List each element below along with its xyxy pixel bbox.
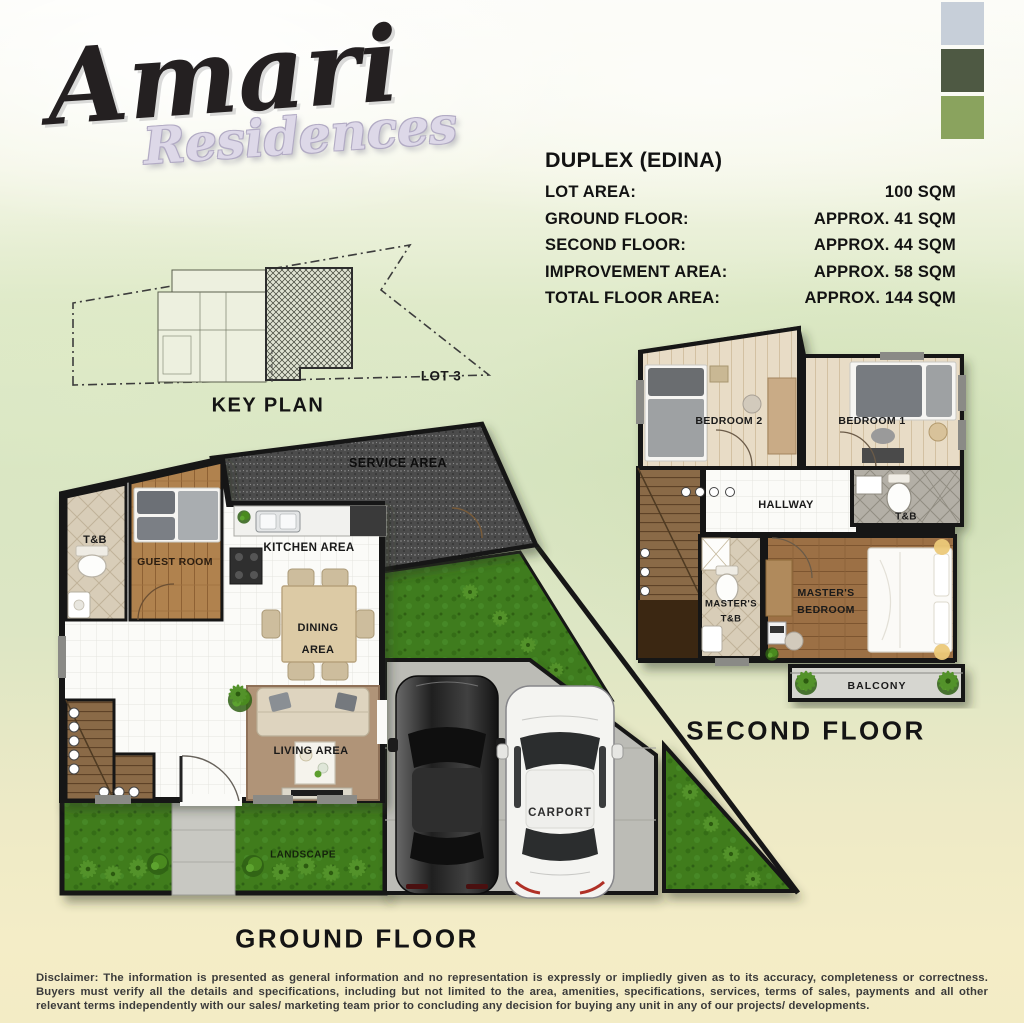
walkway [172, 798, 235, 895]
color-swatch-1 [941, 2, 984, 45]
masters-tb-label-1: MASTER'S [705, 599, 757, 610]
key-plan-caption: KEY PLAN [212, 395, 325, 418]
masters-bedroom-label-1: MASTER'S [797, 587, 854, 599]
guest-room [130, 462, 222, 620]
spec-value: APPROX. 58 SQM [814, 259, 956, 286]
bedroom-1 [804, 356, 962, 468]
spec-value: 100 SQM [885, 179, 956, 206]
masters-tb-label-2: T&B [721, 614, 742, 625]
key-plan-unit-highlighted [266, 268, 352, 380]
toilet [78, 555, 106, 577]
bedroom-2-label: BEDROOM 2 [695, 415, 762, 427]
spec-value: APPROX. 144 SQM [804, 285, 956, 312]
living-area [228, 684, 379, 800]
unit-title: DUPLEX (EDINA) [545, 148, 956, 173]
guest-room-label: GUEST ROOM [137, 556, 213, 568]
spec-label: SECOND FLOOR: [545, 232, 686, 259]
dining-area-label-2: AREA [302, 644, 335, 656]
spec-label: TOTAL FLOOR AREA: [545, 285, 720, 312]
unit-specs: DUPLEX (EDINA) LOT AREA:100 SQM GROUND F… [545, 148, 956, 312]
masters-toilet-bath [700, 536, 762, 658]
masters-bedroom-label-2: BEDROOM [797, 604, 855, 616]
lot-number-label: LOT 3 [421, 369, 461, 384]
brand-logo: Amari Residences [43, 1, 492, 183]
page: Amari Residences DUPLEX (EDINA) LOT AREA… [0, 0, 1024, 1023]
toilet [887, 483, 911, 513]
spec-row: IMPROVEMENT AREA:APPROX. 58 SQM [545, 259, 956, 286]
spec-label: GROUND FLOOR: [545, 206, 689, 233]
spec-label: LOT AREA: [545, 179, 636, 206]
disclaimer-text: Disclaimer: The information is presented… [36, 971, 988, 1014]
balcony-label: BALCONY [848, 680, 907, 692]
dining-area-label-1: DINING [298, 622, 339, 634]
spec-row: GROUND FLOOR:APPROX. 41 SQM [545, 206, 956, 233]
ground-tb-label: T&B [83, 534, 107, 546]
bedroom-2 [641, 328, 799, 470]
masters-bedroom [765, 536, 955, 661]
spec-label: IMPROVEMENT AREA: [545, 259, 727, 286]
key-plan-drawing [73, 245, 489, 385]
second-tb-label: T&B [895, 512, 917, 523]
ground-floor-title: GROUND FLOOR [235, 924, 479, 955]
hallway-label: HALLWAY [758, 499, 814, 511]
second-floor-title: SECOND FLOOR [686, 716, 925, 747]
car-dark [388, 676, 506, 894]
spec-row: TOTAL FLOOR AREA:APPROX. 144 SQM [545, 285, 956, 312]
spec-value: APPROX. 41 SQM [814, 206, 956, 233]
sink [856, 476, 882, 494]
desk [766, 560, 792, 616]
living-area-label: LIVING AREA [274, 745, 349, 757]
carport-label: CARPORT [528, 807, 592, 819]
dresser [862, 448, 904, 463]
kitchen-area-label: KITCHEN AREA [263, 542, 354, 554]
color-swatch-2 [941, 49, 984, 92]
spec-row: SECOND FLOOR:APPROX. 44 SQM [545, 232, 956, 259]
stove [230, 548, 262, 584]
ground-toilet-bath [66, 484, 126, 620]
spec-row: LOT AREA:100 SQM [545, 179, 956, 206]
landscape-label: LANDSCAPE [270, 850, 336, 861]
shower [702, 626, 722, 652]
bedroom-1-label: BEDROOM 1 [838, 415, 905, 427]
side-landscape [664, 745, 794, 891]
car-white [497, 686, 623, 898]
refrigerator [350, 506, 386, 536]
desk [768, 378, 796, 454]
color-swatch-3 [941, 96, 984, 139]
spec-value: APPROX. 44 SQM [814, 232, 956, 259]
service-area-label: SERVICE AREA [349, 456, 447, 470]
key-plan-unit-left [158, 292, 266, 382]
